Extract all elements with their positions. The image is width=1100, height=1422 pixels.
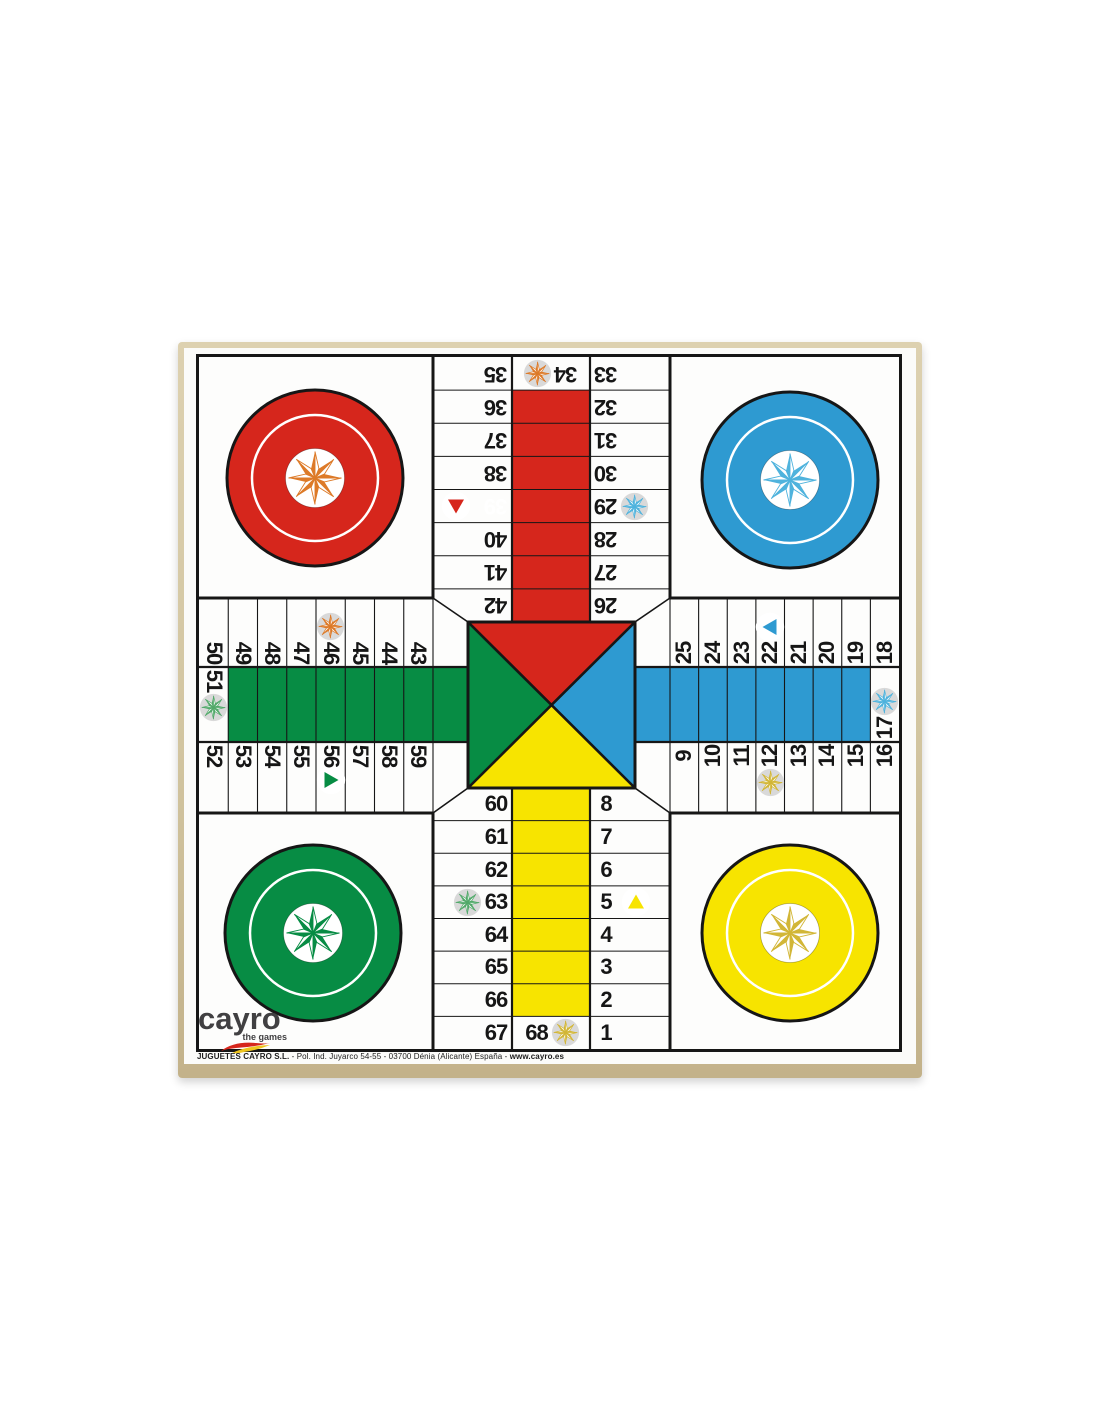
cell-52[interactable]: 52 <box>199 742 228 813</box>
cell-30[interactable]: 30 <box>590 456 670 489</box>
cell-4[interactable]: 4 <box>590 919 670 952</box>
cell-29-number: 29 <box>592 494 620 518</box>
cell-38[interactable]: 38 <box>433 456 512 489</box>
cell-34[interactable]: 34 <box>512 357 590 390</box>
cell-25-number: 25 <box>672 639 696 667</box>
cell-17[interactable]: 17 <box>870 667 899 742</box>
cell-33-number: 33 <box>592 362 620 386</box>
cell-61[interactable]: 61 <box>433 821 512 854</box>
cell-4-number: 4 <box>592 923 620 947</box>
safe-star-29-icon <box>620 492 649 521</box>
cell-48[interactable]: 48 <box>258 598 287 667</box>
cell-31-number: 31 <box>592 428 620 452</box>
cell-67[interactable]: 67 <box>433 1016 512 1049</box>
cell-10[interactable]: 10 <box>699 742 728 813</box>
cell-9-number: 9 <box>672 742 696 770</box>
footer-website: www.cayro.es <box>510 1052 564 1061</box>
cell-62-number: 62 <box>482 858 510 882</box>
cell-16-number: 16 <box>873 742 897 770</box>
cell-55[interactable]: 55 <box>287 742 316 813</box>
cell-65[interactable]: 65 <box>433 951 512 984</box>
cell-37[interactable]: 37 <box>433 423 512 456</box>
cell-52-number: 52 <box>202 742 226 770</box>
footer-address: - Pol. Ind. Juyarco 54-55 - 03700 Dénia … <box>289 1052 509 1061</box>
cell-39[interactable]: 39 <box>433 490 512 523</box>
cell-21[interactable]: 21 <box>785 598 814 667</box>
cell-56-number: 56 <box>319 742 343 770</box>
exit-arrow-5-icon <box>621 887 651 917</box>
cell-47-number: 47 <box>289 639 313 667</box>
cell-54[interactable]: 54 <box>258 742 287 813</box>
cell-51-number: 51 <box>202 667 226 695</box>
cell-22-number: 22 <box>758 639 782 667</box>
cell-44-number: 44 <box>377 639 401 667</box>
cell-38-number: 38 <box>482 461 510 485</box>
cell-31[interactable]: 31 <box>590 423 670 456</box>
page: 3536373839404142333231302928272634252423… <box>0 0 1100 1422</box>
cell-30-number: 30 <box>592 461 620 485</box>
cell-2[interactable]: 2 <box>590 984 670 1017</box>
parchis-board: 3536373839404142333231302928272634252423… <box>178 342 922 1078</box>
cell-9[interactable]: 9 <box>670 742 699 813</box>
cell-66-number: 66 <box>482 988 510 1012</box>
cayro-logo: cayro the games <box>198 1005 290 1054</box>
cell-43-number: 43 <box>406 639 430 667</box>
cell-43[interactable]: 43 <box>404 598 433 667</box>
cell-25[interactable]: 25 <box>670 598 699 667</box>
cell-66[interactable]: 66 <box>433 984 512 1017</box>
cell-42-number: 42 <box>482 593 510 617</box>
cell-37-number: 37 <box>482 428 510 452</box>
cell-8[interactable]: 8 <box>590 788 670 821</box>
cell-51[interactable]: 51 <box>199 667 228 742</box>
cell-11[interactable]: 11 <box>727 742 756 813</box>
cell-27[interactable]: 27 <box>590 556 670 589</box>
cell-59-number: 59 <box>406 742 430 770</box>
cell-10-number: 10 <box>701 742 725 770</box>
cell-64[interactable]: 64 <box>433 919 512 952</box>
play-area: 3536373839404142333231302928272634252423… <box>196 354 902 1052</box>
cell-39-number: 39 <box>482 494 510 518</box>
cell-2-number: 2 <box>592 988 620 1012</box>
cell-26[interactable]: 26 <box>590 589 670 622</box>
cell-6[interactable]: 6 <box>590 853 670 886</box>
cell-7[interactable]: 7 <box>590 821 670 854</box>
cell-36[interactable]: 36 <box>433 390 512 423</box>
cell-33[interactable]: 33 <box>590 357 670 390</box>
cell-67-number: 67 <box>482 1021 510 1045</box>
cell-11-number: 11 <box>730 742 754 770</box>
footer-company: JUGUETES CAYRO S.L. <box>197 1052 289 1061</box>
cell-53-number: 53 <box>231 742 255 770</box>
cell-21-number: 21 <box>787 639 811 667</box>
cell-18[interactable]: 18 <box>870 598 899 667</box>
safe-star-63-icon <box>453 888 482 917</box>
cell-45-number: 45 <box>348 639 372 667</box>
cell-1[interactable]: 1 <box>590 1016 670 1049</box>
cell-8-number: 8 <box>592 792 620 816</box>
cell-46-number: 46 <box>319 639 343 667</box>
cell-7-number: 7 <box>592 825 620 849</box>
cell-40[interactable]: 40 <box>433 523 512 556</box>
cell-23[interactable]: 23 <box>727 598 756 667</box>
cell-58-number: 58 <box>377 742 401 770</box>
cell-46[interactable]: 46 <box>316 598 345 667</box>
cell-59[interactable]: 59 <box>404 742 433 813</box>
cell-24[interactable]: 24 <box>699 598 728 667</box>
cell-63[interactable]: 63 <box>433 886 512 919</box>
cell-34-number: 34 <box>552 362 580 386</box>
cell-65-number: 65 <box>482 955 510 979</box>
cell-1-number: 1 <box>592 1021 620 1045</box>
cell-20-number: 20 <box>815 639 839 667</box>
cell-36-number: 36 <box>482 395 510 419</box>
cell-15-number: 15 <box>844 742 868 770</box>
cell-47[interactable]: 47 <box>287 598 316 667</box>
cell-32-number: 32 <box>592 395 620 419</box>
cell-12[interactable]: 12 <box>756 742 785 813</box>
cell-19[interactable]: 19 <box>842 598 871 667</box>
cell-64-number: 64 <box>482 923 510 947</box>
safe-star-12-icon <box>756 768 785 797</box>
cell-23-number: 23 <box>730 639 754 667</box>
cell-50[interactable]: 50 <box>199 598 228 667</box>
cell-13[interactable]: 13 <box>785 742 814 813</box>
cell-5[interactable]: 5 <box>590 886 670 919</box>
cell-16[interactable]: 16 <box>870 742 899 813</box>
cell-68-number: 68 <box>523 1021 551 1045</box>
cell-32[interactable]: 32 <box>590 390 670 423</box>
logo-wordmark: cayro <box>198 1005 290 1033</box>
cell-22[interactable]: 22 <box>756 598 785 667</box>
safe-star-17-icon <box>870 687 899 716</box>
cell-29[interactable]: 29 <box>590 490 670 523</box>
cell-18-number: 18 <box>873 639 897 667</box>
cell-3[interactable]: 3 <box>590 951 670 984</box>
cell-45[interactable]: 45 <box>345 598 374 667</box>
cell-68[interactable]: 68 <box>512 1016 590 1049</box>
cell-57[interactable]: 57 <box>345 742 374 813</box>
safe-star-34-icon <box>523 359 552 388</box>
safe-star-51-icon <box>199 693 228 722</box>
cell-35[interactable]: 35 <box>433 357 512 390</box>
cell-54-number: 54 <box>260 742 284 770</box>
cell-12-number: 12 <box>758 742 782 770</box>
cell-35-number: 35 <box>482 362 510 386</box>
cell-13-number: 13 <box>787 742 811 770</box>
track-cells: 3536373839404142333231302928272634252423… <box>199 357 899 1049</box>
cell-26-number: 26 <box>592 593 620 617</box>
cell-48-number: 48 <box>260 639 284 667</box>
cell-60-number: 60 <box>482 792 510 816</box>
exit-arrow-22-icon <box>755 612 785 642</box>
footer-fineprint: JUGUETES CAYRO S.L. - Pol. Ind. Juyarco … <box>197 1052 564 1061</box>
cell-24-number: 24 <box>701 639 725 667</box>
cell-41-number: 41 <box>482 560 510 584</box>
cell-50-number: 50 <box>202 639 226 667</box>
cell-19-number: 19 <box>844 639 868 667</box>
cell-42[interactable]: 42 <box>433 589 512 622</box>
cell-17-number: 17 <box>873 714 897 742</box>
safe-star-68-icon <box>551 1018 580 1047</box>
cell-60[interactable]: 60 <box>433 788 512 821</box>
cell-5-number: 5 <box>592 890 620 914</box>
cell-56[interactable]: 56 <box>316 742 345 813</box>
board-face: 3536373839404142333231302928272634252423… <box>184 348 916 1064</box>
cell-28[interactable]: 28 <box>590 523 670 556</box>
cell-49[interactable]: 49 <box>228 598 257 667</box>
exit-arrow-39-icon <box>441 491 471 521</box>
cell-53[interactable]: 53 <box>228 742 257 813</box>
safe-star-46-icon <box>316 612 345 641</box>
cell-62[interactable]: 62 <box>433 853 512 886</box>
cell-55-number: 55 <box>289 742 313 770</box>
cell-61-number: 61 <box>482 825 510 849</box>
cell-14-number: 14 <box>815 742 839 770</box>
cell-49-number: 49 <box>231 639 255 667</box>
cell-15[interactable]: 15 <box>842 742 871 813</box>
cell-40-number: 40 <box>482 527 510 551</box>
cell-63-number: 63 <box>482 890 510 914</box>
cell-27-number: 27 <box>592 560 620 584</box>
cell-28-number: 28 <box>592 527 620 551</box>
cell-20[interactable]: 20 <box>813 598 842 667</box>
cell-41[interactable]: 41 <box>433 556 512 589</box>
cell-3-number: 3 <box>592 955 620 979</box>
cell-14[interactable]: 14 <box>813 742 842 813</box>
cell-44[interactable]: 44 <box>375 598 404 667</box>
cell-58[interactable]: 58 <box>375 742 404 813</box>
cell-57-number: 57 <box>348 742 372 770</box>
cell-6-number: 6 <box>592 858 620 882</box>
